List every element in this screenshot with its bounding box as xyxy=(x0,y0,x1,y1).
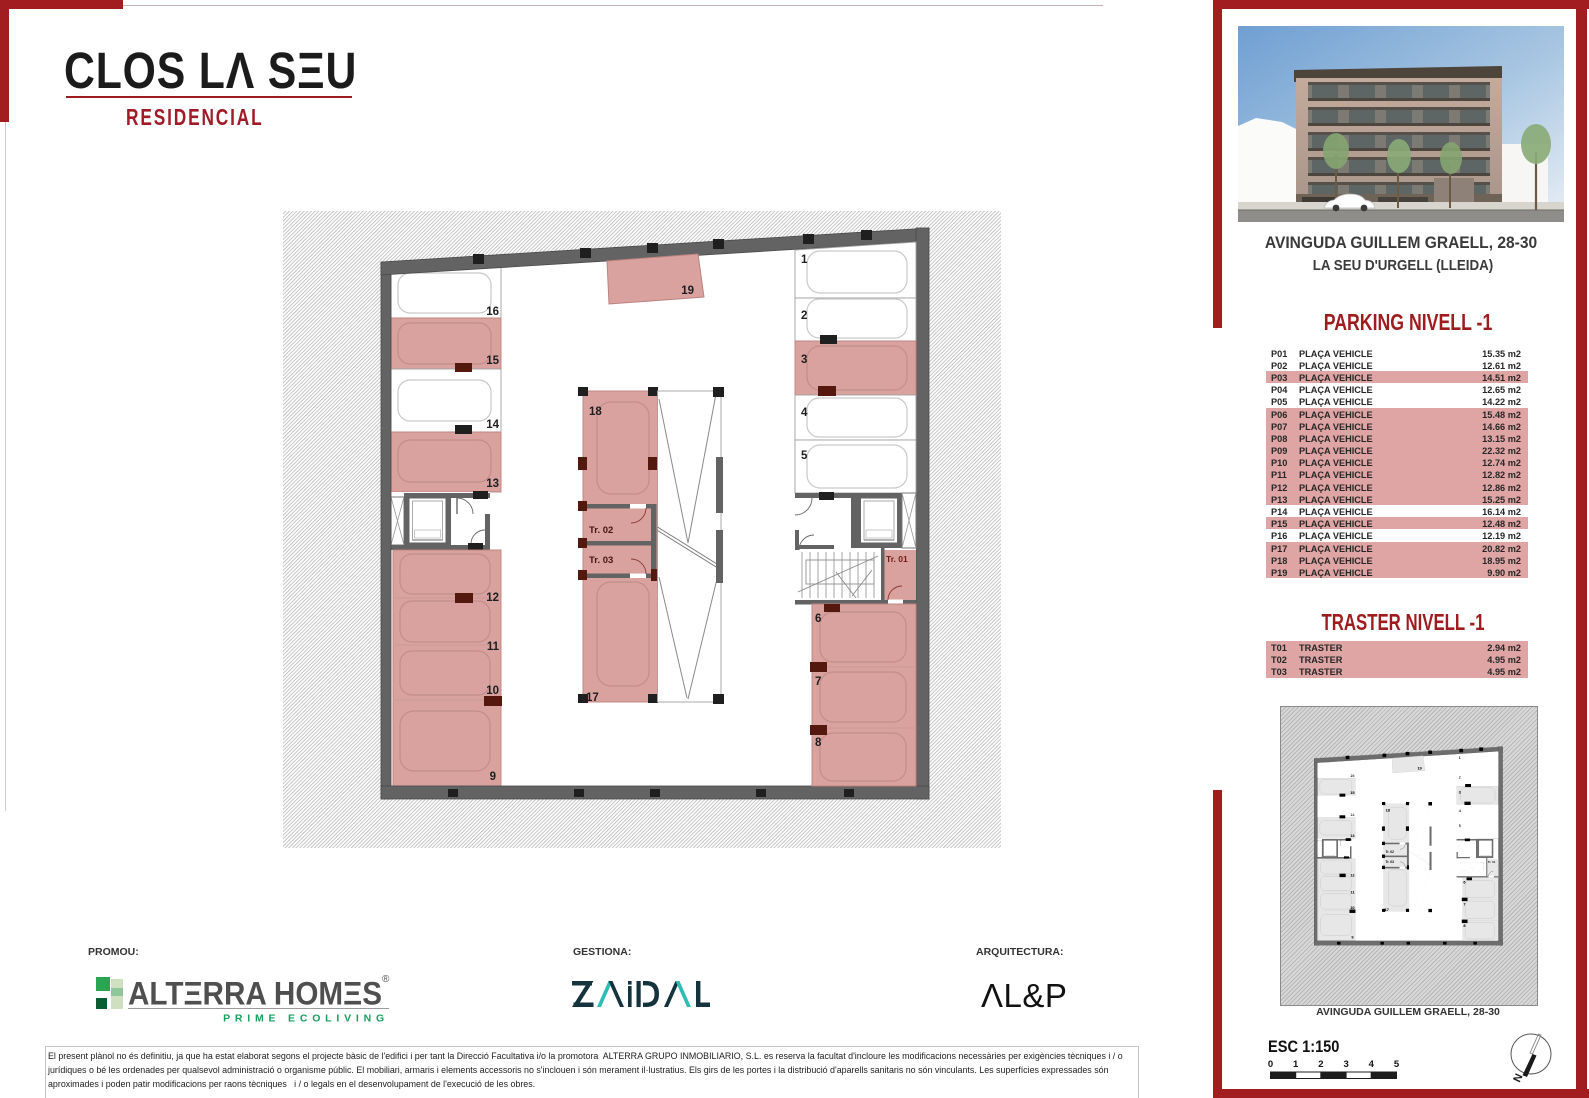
svg-text:ALTΞRRA HOMΞS: ALTΞRRA HOMΞS xyxy=(128,976,382,1012)
svg-text:2: 2 xyxy=(1318,1059,1323,1070)
svg-text:19: 19 xyxy=(681,285,694,297)
svg-text:4: 4 xyxy=(801,407,808,419)
svg-text:®: ® xyxy=(382,974,390,985)
svg-text:1: 1 xyxy=(801,254,808,266)
svg-text:12: 12 xyxy=(486,592,499,604)
svg-text:16: 16 xyxy=(486,306,499,318)
svg-text:Tr. 03: Tr. 03 xyxy=(589,555,613,566)
svg-text:4: 4 xyxy=(1369,1059,1375,1070)
svg-text:10: 10 xyxy=(486,685,499,697)
svg-text:0: 0 xyxy=(1268,1059,1273,1070)
svg-text:7: 7 xyxy=(815,676,821,688)
svg-text:Tr. 01: Tr. 01 xyxy=(886,554,908,564)
svg-text:3: 3 xyxy=(801,354,807,366)
svg-text:2: 2 xyxy=(801,310,807,322)
svg-text:8: 8 xyxy=(815,737,822,749)
svg-text:5: 5 xyxy=(1394,1059,1400,1070)
svg-text:3: 3 xyxy=(1343,1059,1348,1070)
svg-text:11: 11 xyxy=(487,641,500,653)
svg-text:15: 15 xyxy=(486,355,499,367)
svg-text:PRIME ECOLIVING: PRIME ECOLIVING xyxy=(223,1013,389,1025)
svg-text:1: 1 xyxy=(1293,1059,1299,1070)
svg-text:13: 13 xyxy=(486,478,499,490)
svg-text:14: 14 xyxy=(486,419,499,431)
svg-text:9: 9 xyxy=(490,771,496,783)
svg-text:Tr. 02: Tr. 02 xyxy=(589,525,613,536)
svg-text:6: 6 xyxy=(815,613,821,625)
svg-text:5: 5 xyxy=(801,450,808,462)
svg-text:18: 18 xyxy=(589,406,602,418)
